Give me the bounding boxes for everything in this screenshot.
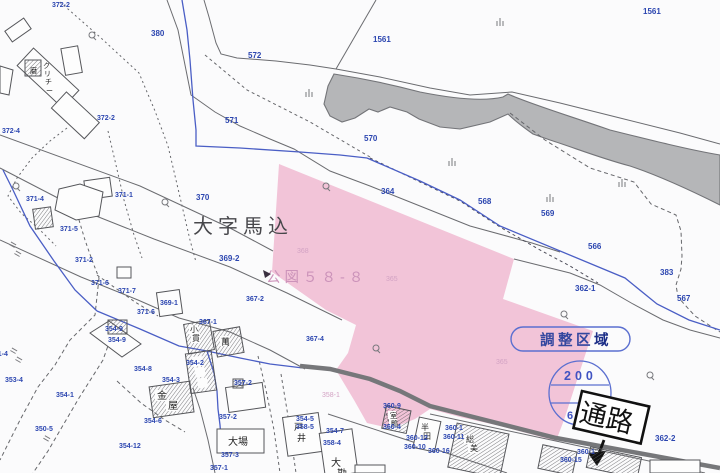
svg-text:大字馬込: 大字馬込 [193, 215, 293, 238]
svg-text:勘: 勘 [337, 468, 347, 473]
svg-text:1561: 1561 [373, 35, 391, 44]
svg-text:200: 200 [564, 369, 597, 383]
svg-text:362-2: 362-2 [655, 434, 676, 443]
svg-text:372-4: 372-4 [2, 128, 20, 135]
svg-text:リ: リ [44, 71, 51, 78]
svg-text:360-1: 360-1 [445, 425, 463, 432]
svg-text:357-3: 357-3 [221, 452, 239, 459]
svg-text:358-4: 358-4 [323, 440, 341, 447]
svg-text:大場: 大場 [228, 435, 248, 448]
svg-text:屋: 屋 [168, 400, 178, 412]
svg-text:351-4: 351-4 [0, 351, 8, 358]
svg-text:357-2: 357-2 [219, 414, 237, 421]
svg-text:369-2: 369-2 [219, 254, 240, 263]
svg-text:358-1: 358-1 [322, 392, 340, 399]
svg-text:354-12: 354-12 [119, 443, 141, 450]
svg-text:358-5: 358-5 [296, 424, 314, 431]
svg-text:571: 571 [225, 116, 239, 125]
svg-text:大: 大 [331, 456, 341, 469]
svg-text:380: 380 [151, 29, 165, 38]
svg-text:井: 井 [297, 432, 306, 443]
svg-text:367-1: 367-1 [199, 319, 217, 326]
svg-text:360-12: 360-12 [406, 435, 428, 442]
svg-text:367-4: 367-4 [306, 336, 324, 343]
svg-text:572: 572 [248, 51, 262, 60]
svg-text:354-2: 354-2 [186, 360, 204, 367]
svg-text:567: 567 [677, 294, 691, 303]
svg-text:371-2: 371-2 [75, 257, 93, 264]
svg-text:室: 室 [390, 411, 397, 420]
svg-text:354-6: 354-6 [144, 418, 162, 425]
svg-text:360-4: 360-4 [383, 424, 401, 431]
svg-text:570: 570 [364, 134, 378, 143]
svg-text:372-2: 372-2 [52, 2, 70, 9]
svg-text:公図５８-８: 公図５８-８ [266, 269, 367, 286]
svg-text:370: 370 [196, 193, 210, 202]
svg-text:360-15: 360-15 [560, 457, 582, 464]
svg-text:金: 金 [157, 389, 167, 402]
svg-text:566: 566 [588, 242, 602, 251]
svg-text:354-3: 354-3 [162, 377, 180, 384]
svg-text:371-1: 371-1 [115, 192, 133, 199]
svg-text:354-8: 354-8 [134, 366, 152, 373]
svg-text:357-1: 357-1 [210, 465, 228, 472]
svg-text:1561: 1561 [643, 7, 661, 16]
svg-text:353-4: 353-4 [5, 377, 23, 384]
svg-text:半: 半 [421, 422, 429, 432]
svg-text:360-9: 360-9 [383, 403, 401, 410]
svg-text:360-16: 360-16 [428, 448, 450, 455]
svg-text:357-2: 357-2 [234, 380, 252, 387]
svg-text:362-1: 362-1 [575, 284, 596, 293]
svg-text:369-1: 369-1 [160, 300, 178, 307]
svg-text:350-5: 350-5 [35, 426, 53, 433]
svg-text:総: 総 [466, 434, 474, 444]
svg-text:354-5: 354-5 [296, 416, 314, 423]
svg-text:360-11: 360-11 [443, 434, 465, 441]
svg-text:360-1: 360-1 [577, 449, 595, 456]
svg-text:ク: ク [43, 62, 50, 70]
svg-text:360-10: 360-10 [404, 444, 426, 451]
svg-text:371-7: 371-7 [118, 288, 136, 295]
svg-text:小: 小 [190, 325, 198, 334]
svg-text:371-6: 371-6 [91, 280, 109, 287]
svg-text:568: 568 [478, 197, 492, 206]
svg-text:チ: チ [45, 78, 52, 86]
svg-text:383: 383 [660, 268, 674, 277]
svg-text:磨: 磨 [30, 66, 37, 75]
svg-text:調整区域: 調整区域 [540, 331, 612, 349]
svg-text:371-4: 371-4 [26, 196, 44, 203]
svg-text:萬: 萬 [221, 336, 230, 347]
svg-text:364: 364 [381, 187, 395, 196]
svg-text:貫: 貫 [192, 334, 200, 343]
svg-text:367-2: 367-2 [246, 296, 264, 303]
svg-text:354-1: 354-1 [56, 392, 74, 399]
svg-text:371-6: 371-6 [137, 309, 155, 316]
svg-text:ー: ー [46, 88, 53, 95]
svg-text:美: 美 [470, 443, 478, 453]
svg-text:569: 569 [541, 209, 555, 218]
svg-text:354-9: 354-9 [108, 337, 126, 344]
svg-text:6: 6 [567, 410, 573, 422]
svg-text:371-5: 371-5 [60, 226, 78, 233]
svg-text:365: 365 [496, 359, 508, 366]
svg-text:372-2: 372-2 [97, 115, 115, 122]
svg-text:354-9: 354-9 [105, 326, 123, 333]
svg-text:368: 368 [297, 248, 309, 255]
svg-text:365: 365 [386, 276, 398, 283]
svg-text:354-7: 354-7 [326, 428, 344, 435]
